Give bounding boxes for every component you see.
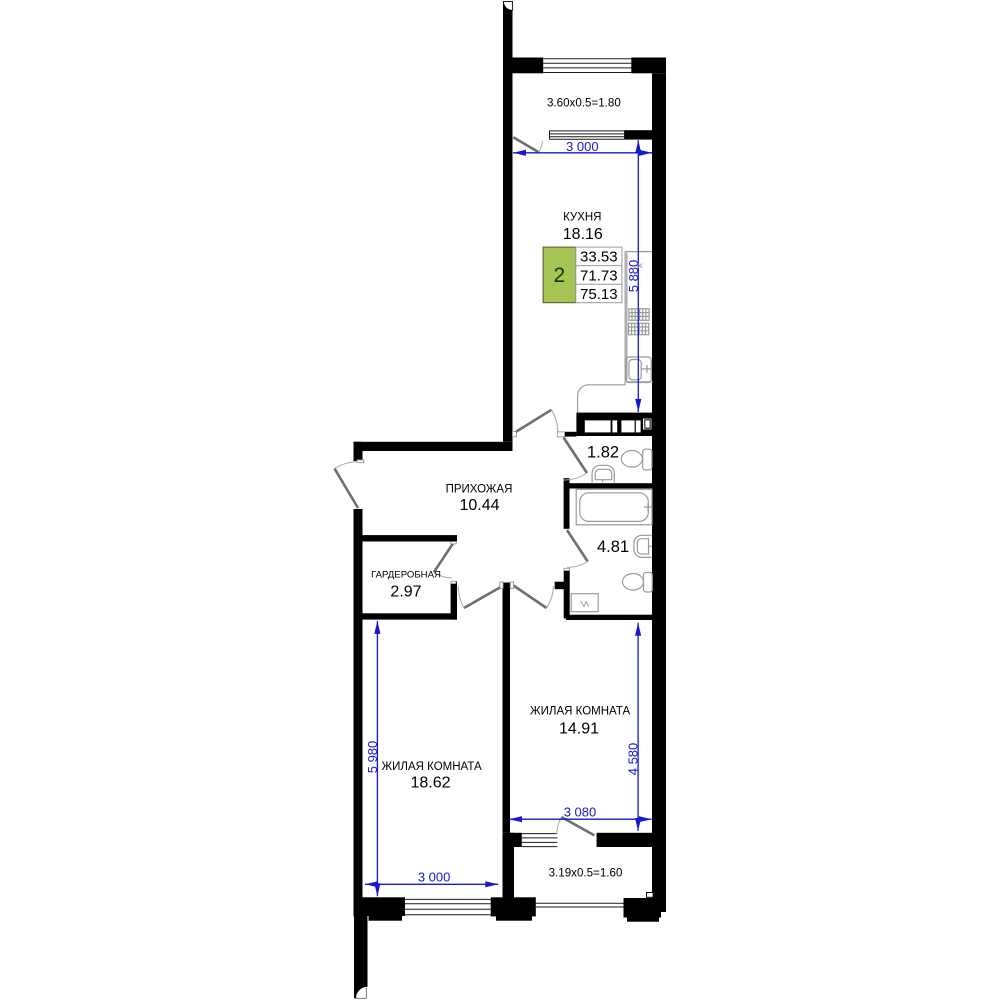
svg-text:33.53: 33.53 [580,249,618,266]
svg-text:10.44: 10.44 [459,497,499,514]
svg-text:2.97: 2.97 [390,583,421,600]
svg-text:4.81: 4.81 [597,538,629,556]
svg-text:2: 2 [554,264,566,287]
svg-text:1.82: 1.82 [587,443,619,461]
svg-text:3 000: 3 000 [418,870,451,885]
svg-text:3.19x0.5=1.60: 3.19x0.5=1.60 [549,867,623,880]
svg-text:4 580: 4 580 [626,743,641,776]
svg-text:18.62: 18.62 [410,775,450,792]
svg-text:75.13: 75.13 [580,286,618,303]
svg-text:3.60x0.5=1.80: 3.60x0.5=1.80 [547,97,621,110]
svg-text:КУХНЯ: КУХНЯ [563,212,601,224]
svg-text:ПРИХОЖАЯ: ПРИХОЖАЯ [446,484,513,496]
svg-text:ЖИЛАЯ КОМНАТА: ЖИЛАЯ КОМНАТА [382,761,482,773]
svg-text:71.73: 71.73 [580,268,618,285]
svg-text:5 980: 5 980 [365,741,380,774]
svg-text:ЖИЛАЯ КОМНАТА: ЖИЛАЯ КОМНАТА [530,706,630,718]
svg-text:3 080: 3 080 [564,805,597,820]
svg-text:14.91: 14.91 [559,720,599,737]
svg-text:3 000: 3 000 [566,139,599,154]
svg-text:ГАРДЕРОБНАЯ: ГАРДЕРОБНАЯ [371,570,441,581]
svg-text:18.16: 18.16 [563,226,603,243]
